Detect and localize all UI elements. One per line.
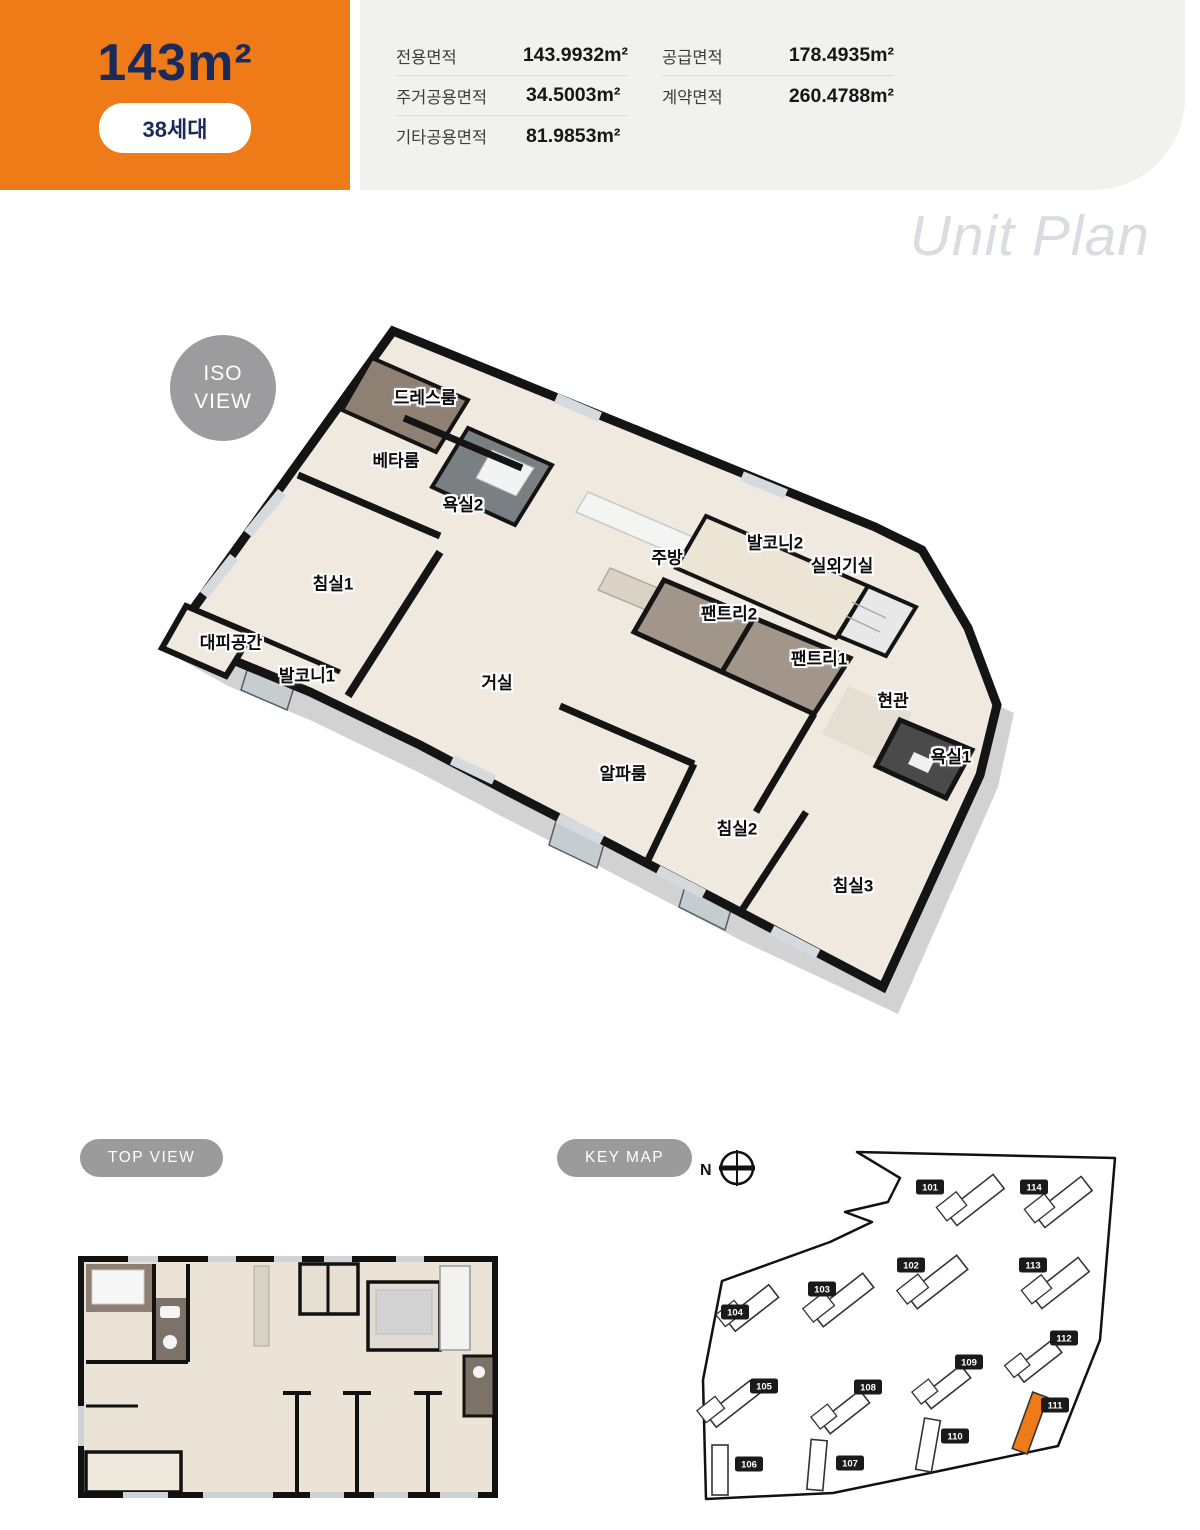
keymap-building-114: 114: [1020, 1176, 1092, 1227]
tv-kitchen-island: [254, 1266, 269, 1346]
svg-text:112: 112: [1056, 1334, 1071, 1345]
iso-room-label: 침실2: [717, 815, 758, 840]
households-badge: 38세대: [99, 103, 252, 153]
area-row: 기타공용면적 81.9853m²: [396, 116, 628, 156]
iso-room-label: 팬트리1: [791, 645, 847, 670]
tv-fixture: [160, 1306, 180, 1318]
area-column-right: 공급면적 178.4935m² 계약면적 260.4788m²: [662, 36, 894, 116]
key-map-badge: KEY MAP: [557, 1139, 692, 1177]
area-label: 전용면적: [396, 44, 511, 68]
iso-room-label: 베타룸: [373, 447, 420, 472]
tv-balcony: [86, 1452, 181, 1492]
tv-fixture: [473, 1366, 485, 1378]
iso-room-label: 발코니1: [279, 662, 335, 687]
iso-room-label: 드레스룸: [394, 384, 457, 409]
svg-text:104: 104: [727, 1308, 744, 1319]
unit-size-panel: 143m² 38세대: [0, 0, 350, 190]
iso-badge-line1: ISO: [203, 360, 242, 388]
key-map: N 10111410211310310410510810911211111010…: [690, 1145, 1140, 1515]
area-label: 공급면적: [662, 44, 777, 68]
area-row: 계약면적 260.4788m²: [662, 76, 894, 116]
iso-room-label: 실외기실: [811, 552, 874, 577]
keymap-building-106: 106: [712, 1445, 763, 1495]
area-row: 공급면적 178.4935m²: [662, 36, 894, 76]
svg-text:105: 105: [756, 1382, 773, 1393]
iso-room-label: 욕실2: [443, 491, 484, 516]
unit-plan-watermark: Unit Plan: [910, 203, 1150, 269]
svg-text:109: 109: [961, 1358, 977, 1369]
svg-text:106: 106: [741, 1460, 757, 1471]
svg-text:102: 102: [903, 1261, 919, 1272]
iso-room-label: 욕실1: [931, 743, 972, 768]
keymap-building-107: 107: [807, 1439, 864, 1490]
svg-text:110: 110: [947, 1432, 962, 1443]
svg-text:101: 101: [922, 1183, 939, 1194]
area-label: 계약면적: [662, 84, 777, 108]
area-label: 기타공용면적: [396, 124, 514, 148]
iso-room-label: 현관: [877, 687, 908, 712]
area-value: 260.4788m²: [789, 85, 894, 108]
keymap-building-108: 108: [811, 1380, 882, 1434]
iso-room-label: 주방: [651, 544, 682, 569]
area-column-left: 전용면적 143.9932m² 주거공용면적 34.5003m² 기타공용면적 …: [396, 36, 628, 156]
top-view-badge: TOP VIEW: [80, 1139, 223, 1177]
svg-text:111: 111: [1048, 1401, 1064, 1412]
iso-room-label: 침실1: [313, 570, 354, 595]
tv-fixture: [163, 1335, 177, 1349]
tv-closet: [440, 1266, 470, 1350]
area-label: 주거공용면적: [396, 84, 514, 108]
svg-text:114: 114: [1026, 1183, 1042, 1194]
tv-bed1: [92, 1270, 144, 1304]
iso-view-section: 드레스룸베타룸욕실2주방발코니2실외기실팬트리2팬트리1현관욕실1침실1대피공간…: [0, 300, 1200, 1040]
keymap-building-103: 103: [803, 1273, 874, 1327]
keymap-building-102: 102: [897, 1255, 968, 1309]
iso-room-label: 알파룸: [600, 760, 647, 785]
top-view-plan: [78, 1256, 498, 1498]
iso-room-label: 팬트리2: [701, 600, 757, 625]
keymap-building-101: 101: [916, 1174, 1004, 1225]
keymap-building-104: 104: [716, 1285, 779, 1331]
svg-text:103: 103: [814, 1285, 830, 1296]
area-value: 81.9853m²: [526, 125, 620, 148]
keymap-buildings: 1011141021131031041051081091121111101061…: [697, 1174, 1092, 1495]
area-value: 143.9932m²: [523, 44, 628, 67]
svg-text:113: 113: [1025, 1261, 1040, 1272]
area-row: 전용면적 143.9932m²: [396, 36, 628, 76]
north-label: N: [700, 1162, 712, 1179]
svg-text:107: 107: [842, 1459, 858, 1470]
unit-size: 143m²: [97, 37, 252, 89]
iso-badge-line2: VIEW: [194, 388, 252, 416]
iso-room-label: 침실3: [833, 872, 874, 897]
iso-room-label: 대피공간: [200, 629, 263, 654]
area-row: 주거공용면적 34.5003m²: [396, 76, 628, 116]
iso-view-badge: ISO VIEW: [170, 335, 276, 441]
keymap-building-109: 109: [912, 1355, 983, 1409]
keymap-building-110: 110: [916, 1418, 969, 1472]
north-compass: N: [700, 1150, 755, 1186]
area-value: 178.4935m²: [789, 44, 894, 67]
keymap-building-111: 111: [1012, 1392, 1069, 1454]
iso-room-label: 발코니2: [747, 529, 803, 554]
keymap-building-112: 112: [1005, 1331, 1078, 1383]
keymap-building-113: 113: [1019, 1257, 1089, 1308]
svg-text:108: 108: [860, 1383, 876, 1394]
tv-bed2: [376, 1290, 432, 1334]
area-info-panel: 전용면적 143.9932m² 주거공용면적 34.5003m² 기타공용면적 …: [360, 0, 1185, 190]
tv-bathroom1: [464, 1356, 494, 1416]
keymap-building-105: 105: [697, 1379, 778, 1428]
area-value: 34.5003m²: [526, 84, 620, 107]
iso-room-label: 거실: [481, 669, 512, 694]
page: 143m² 38세대 전용면적 143.9932m² 주거공용면적 34.500…: [0, 0, 1200, 1530]
